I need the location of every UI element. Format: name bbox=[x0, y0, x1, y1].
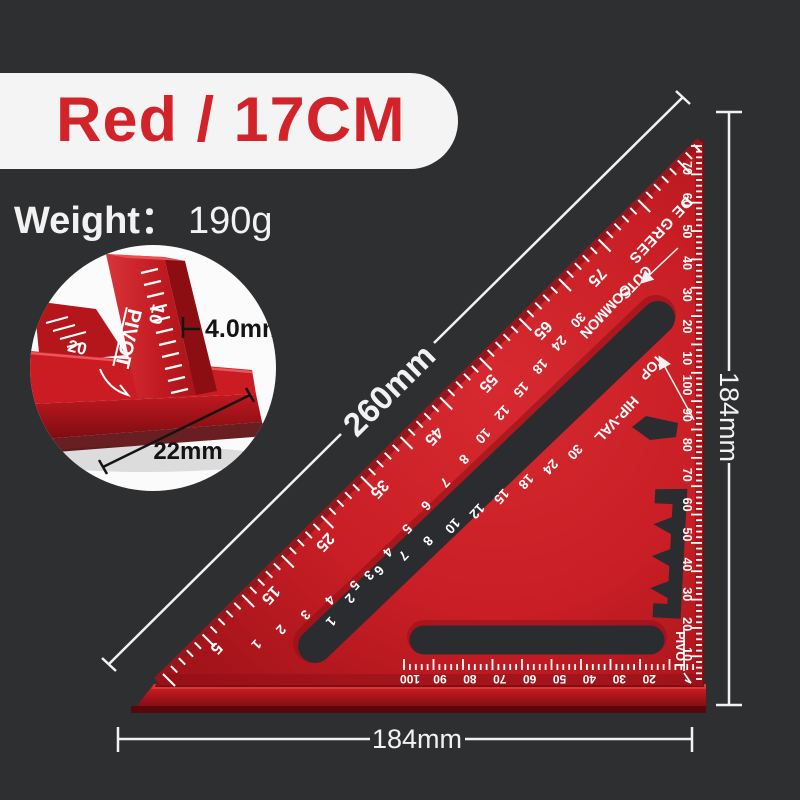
scale-number: 30 bbox=[680, 288, 694, 302]
square-fence-lip bbox=[131, 684, 706, 713]
inset-illustration: 20 bbox=[30, 245, 276, 491]
pivot-corner-label: PIVOT bbox=[673, 631, 687, 669]
bottom-dimension-label: 184mm bbox=[372, 724, 462, 754]
scale-number: 30 bbox=[680, 587, 694, 601]
scale-number: 90 bbox=[433, 672, 447, 686]
scale-number: 40 bbox=[582, 672, 596, 686]
scale-number: 40 bbox=[680, 256, 694, 270]
product-canvas: Red / 17CM Weight：190g bbox=[0, 0, 800, 800]
scale-number: 50 bbox=[553, 672, 567, 686]
scale-number: 50 bbox=[680, 528, 694, 542]
scale-number: 100 bbox=[680, 375, 694, 396]
scale-number: 80 bbox=[463, 672, 477, 686]
scale-number: 80 bbox=[680, 438, 694, 452]
scale-number: 60 bbox=[523, 672, 537, 686]
width-label: 22mm bbox=[153, 438, 222, 465]
scale-number: 40 bbox=[680, 557, 694, 571]
scale-number: 100 bbox=[400, 672, 420, 686]
scale-number: 70 bbox=[680, 161, 694, 175]
scale-number: 20 bbox=[680, 320, 694, 334]
right-dimension-label: 184mm bbox=[714, 372, 744, 462]
detail-inset-circle: 20 bbox=[30, 245, 276, 491]
scale-number: 70 bbox=[680, 468, 694, 482]
scale-number: 70 bbox=[493, 672, 507, 686]
thickness-label: 4.0mm bbox=[205, 315, 276, 343]
scale-number: 10 bbox=[680, 351, 694, 365]
scale-number: 50 bbox=[680, 224, 694, 238]
scale-number: 30 bbox=[612, 672, 626, 686]
scale-number: 20 bbox=[680, 617, 694, 631]
scale-number: 20 bbox=[642, 672, 656, 686]
scale-number: 60 bbox=[680, 498, 694, 512]
